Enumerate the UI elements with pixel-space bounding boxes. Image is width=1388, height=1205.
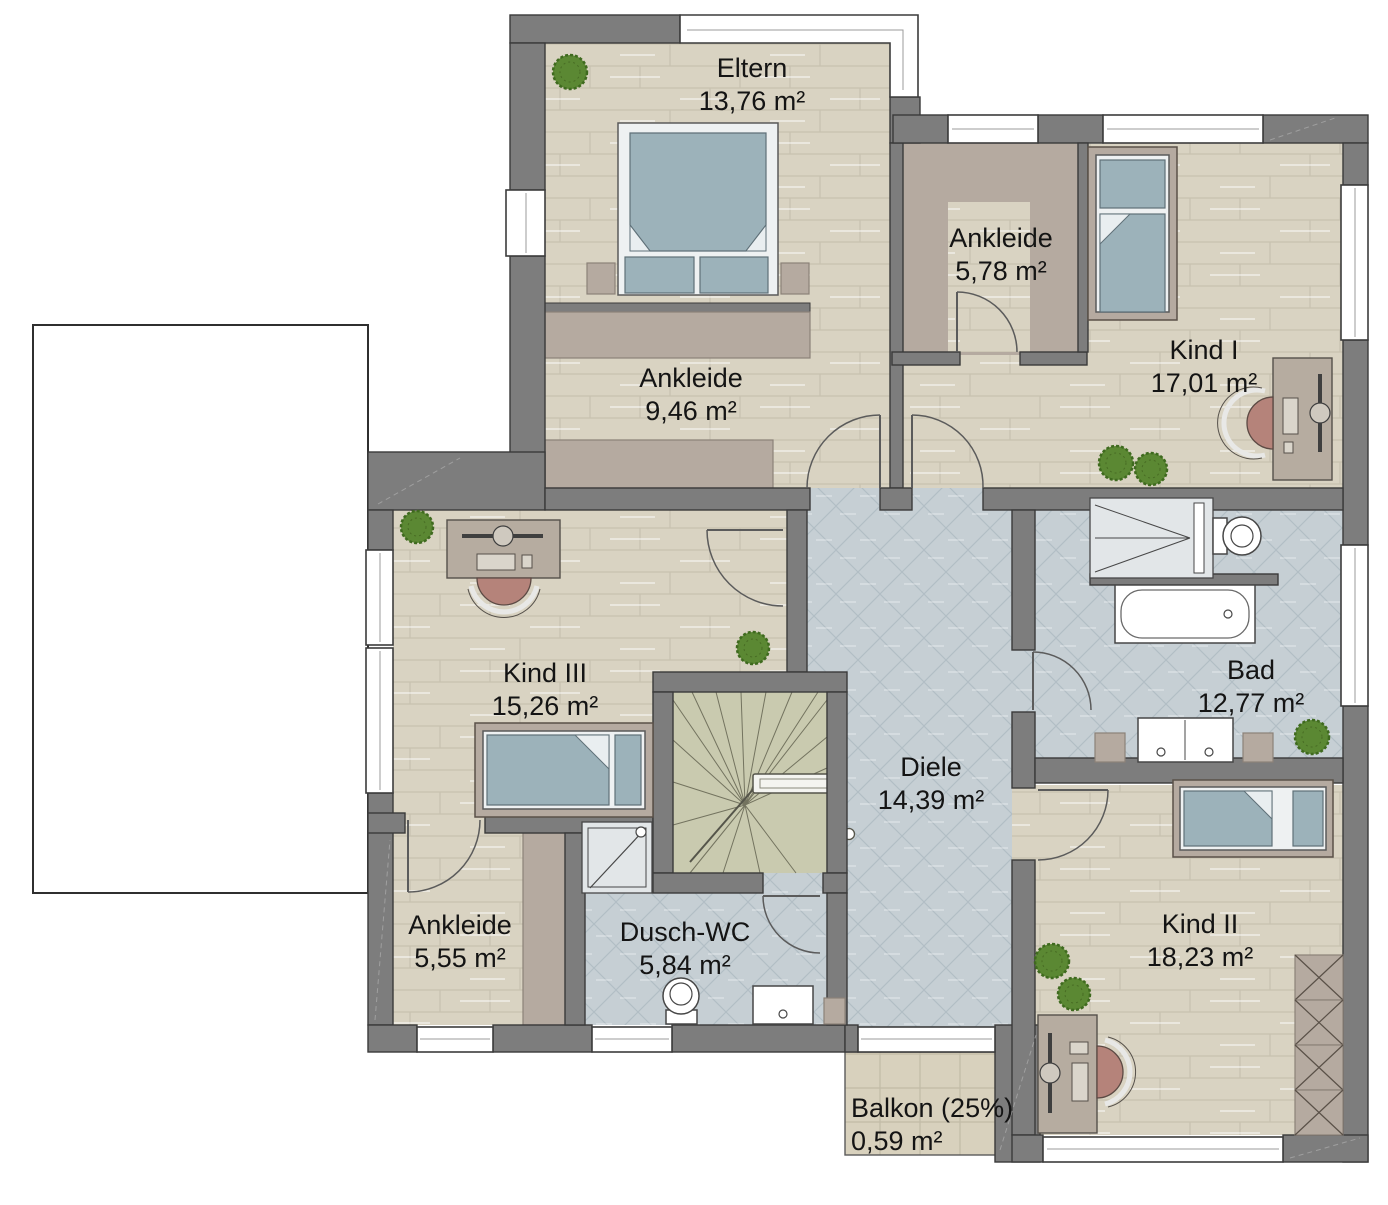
floor-plan-drawing	[0, 0, 1388, 1205]
cabinet-duschwc	[824, 998, 845, 1024]
single-bed-kind2	[1173, 780, 1333, 857]
shower-duschwc	[582, 822, 652, 893]
bath-cabinet-right	[1243, 733, 1273, 762]
nightstand-left	[587, 263, 615, 294]
plant	[401, 511, 433, 543]
mouse	[1284, 442, 1293, 453]
shower-bad	[1090, 498, 1213, 578]
room-label-kind2: Kind II18,23 m²	[1147, 908, 1254, 974]
wardrobe-back-line	[545, 303, 810, 312]
room-label-ankleide578: Ankleide5,78 m²	[949, 222, 1053, 288]
bathtub	[1115, 585, 1255, 643]
mouse	[522, 555, 532, 568]
toilet-duschwc	[663, 978, 699, 1024]
room-label-duschwc: Dusch-WC5,84 m²	[620, 916, 751, 982]
room-label-kind1: Kind I17,01 m²	[1151, 334, 1258, 400]
plant	[1099, 446, 1133, 480]
plant	[1058, 978, 1090, 1010]
wardrobe-eltern-bottom	[545, 440, 773, 488]
plant	[553, 55, 587, 89]
plant	[1035, 944, 1069, 978]
double-bed-eltern	[587, 123, 809, 295]
room-label-balkon: Balkon (25%)0,59 m²	[851, 1092, 1013, 1158]
nightstand-right	[781, 263, 809, 294]
wardrobe-ankleide555	[523, 833, 568, 1025]
plant	[1135, 453, 1167, 485]
keyboard	[1072, 1063, 1088, 1101]
room-label-bad: Bad12,77 m²	[1198, 654, 1305, 720]
plant	[737, 632, 769, 664]
single-bed-kind3	[475, 723, 653, 817]
wardrobe-kind2	[1295, 955, 1343, 1135]
room-label-kind3: Kind III15,26 m²	[492, 657, 599, 723]
mouse	[1070, 1042, 1088, 1054]
toilet-bad	[1213, 517, 1261, 555]
wardrobe-eltern-top	[545, 312, 810, 358]
keyboard	[1283, 398, 1298, 434]
keyboard	[477, 554, 515, 570]
plant	[1295, 720, 1329, 754]
single-bed-kind1	[1088, 147, 1177, 320]
bath-cabinet-left	[1095, 733, 1125, 762]
roof-outline-below	[33, 325, 368, 893]
room-label-eltern: Eltern13,76 m²	[699, 52, 806, 118]
room-label-ankleide946: Ankleide9,46 m²	[639, 362, 743, 428]
room-label-ankleide555: Ankleide5,55 m²	[408, 909, 512, 975]
room-label-diele: Diele14,39 m²	[878, 751, 985, 817]
floor-plan-canvas: Eltern13,76 m² Ankleide5,78 m² Kind I17,…	[0, 0, 1388, 1205]
